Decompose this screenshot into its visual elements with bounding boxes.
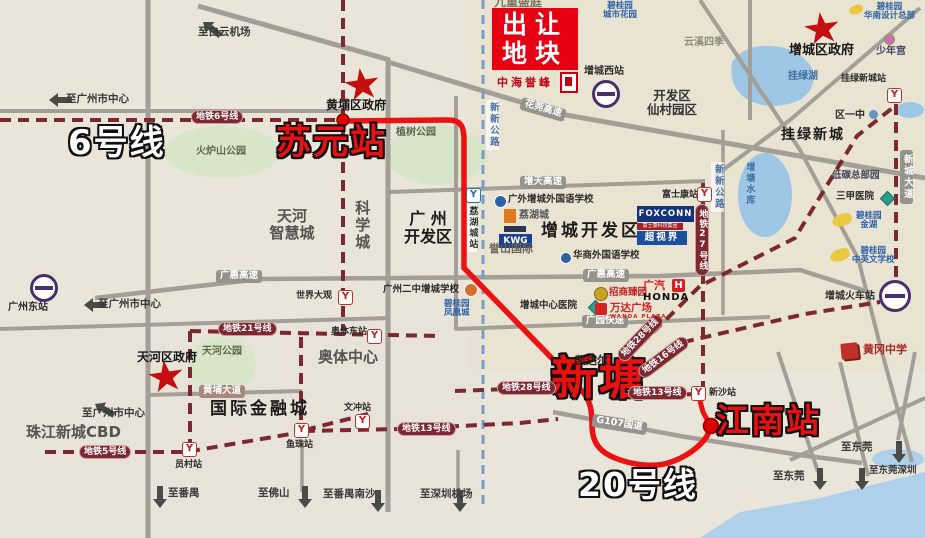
lihucheng-estate-logo — [504, 209, 516, 223]
school-icon-gz-no2 — [464, 283, 478, 297]
poi-youth-palace: 少年宫 — [876, 46, 906, 58]
road-label-xinxin-b: 新新公路 — [711, 162, 724, 212]
metro-label-line13-west: 地铁13号线 — [397, 422, 456, 436]
foxconn-logo-box: FOXCONN — [637, 206, 694, 222]
area-intl-finance: 国际金融城 — [210, 400, 310, 420]
metro-label-line28-west: 地铁28号线 — [497, 381, 556, 395]
chaoshijie-logo-box: 超视界 — [637, 231, 687, 245]
metro-label-line13-east: 地铁13号线 — [628, 386, 687, 400]
poi-low-carbon-park: 低碳总部园 — [832, 171, 880, 182]
zengtang-reservoir-label: 增塘水库 — [744, 162, 754, 206]
area-tianhe-smart: 天河 智慧城 — [262, 208, 322, 243]
poi-bgy-jinhu: 碧桂园 金湖 — [856, 212, 882, 231]
parcel-badge: 出让 地块 — [492, 8, 578, 70]
gualv-lake-label: 挂绿湖 — [788, 71, 818, 83]
area-tianhe-smart-l1: 天河 — [262, 208, 322, 225]
dir-gz-center-1: 至广州市中心 — [66, 93, 129, 105]
dir-panyu-nansha: 至番禺南沙 — [323, 488, 376, 500]
parcel-badge-line1: 出让 — [492, 11, 578, 40]
metro-label-line21: 地铁21号线 — [218, 322, 277, 336]
dir-shenzhen-airport: 至深圳机场 — [420, 488, 473, 500]
road-label-huangpu-ave: 黄埔大道 — [199, 385, 245, 398]
area-tianhe-smart-l2: 智慧城 — [262, 225, 322, 242]
line6-callout: 6号线 — [68, 124, 166, 163]
school-icon-huashang — [560, 252, 572, 264]
metro-icon-yuancun: Y — [182, 442, 197, 457]
station-zengcheng-west: 增城西站 — [584, 66, 624, 78]
dir-baiyun-airport: 至白云机场 — [198, 26, 251, 38]
station-yuancun: 员村站 — [175, 460, 202, 470]
zengcheng-xintang-metro-map: 黄埔区政府 天河区政府 增城区政府 出让 地块 中海誉峰 6号线 苏元站 新塘 … — [0, 0, 925, 538]
road-label-xincheng-ave: 新城大道 — [900, 150, 913, 204]
suyuan-callout: 苏元站 — [276, 123, 387, 163]
poi-yushan-intl: 誉山国际 — [489, 243, 533, 256]
area-kaifaqu-xiancun: 开发区 仙村园区 — [640, 89, 704, 118]
poi-bgy-city-garden: 碧桂园 城市花园 — [603, 2, 637, 21]
area-zhujiang-cbd: 珠江新城CBD — [26, 424, 121, 441]
wanda-logo — [595, 303, 607, 315]
parcel-badge-line2: 地块 — [492, 40, 578, 69]
arrow-dongguan-2 — [813, 468, 827, 490]
poi-bgy-jinhu-l2: 金湖 — [856, 221, 882, 230]
huangpu-gov-label: 黄埔区政府 — [326, 99, 386, 113]
poi-sanjia-hospital: 三甲医院 — [836, 192, 874, 203]
road-label-guanghui-east: 广惠高速 — [583, 269, 629, 282]
dir-dongguan-shenzhen: 至东莞深圳 — [869, 466, 917, 477]
poi-bgy-design-hq: 碧桂园 华南设计总部 — [864, 3, 915, 22]
station-foxconn: 富士康站 — [662, 190, 698, 200]
poi-huanggang: 黄冈中学 — [863, 344, 907, 357]
flower-icon-youth-palace — [884, 34, 895, 45]
poi-zhaoshang: 招商臻园 — [609, 288, 647, 299]
road-label-zengtian: 增天高速 — [520, 176, 566, 189]
road-label-guanghui-west: 广惠高速 — [216, 270, 262, 283]
poi-bgy-phoenix-l2: 凤凰城 — [444, 309, 470, 318]
road-label-xinxin-a: 新新公路 — [486, 100, 499, 150]
poi-jiuzhong: 九重盛庭 — [494, 0, 542, 10]
kwg-small-logo — [504, 226, 526, 232]
poi-gac: 广汽 — [643, 280, 665, 293]
poi-yunxi: 云溪四季 — [684, 37, 724, 49]
station-xinsha: 新沙站 — [709, 388, 736, 398]
dir-dongguan-2: 至东莞 — [773, 470, 805, 482]
metro-icon-shijiedaguan: Y — [338, 290, 353, 305]
dir-foshan: 至佛山 — [258, 487, 290, 499]
station-aoti-east: 奥体东站 — [331, 327, 367, 337]
station-yuzhu: 鱼珠站 — [286, 440, 313, 450]
railway-icon-bar — [35, 286, 53, 290]
poi-bgy-design-l2: 华南设计总部 — [864, 12, 915, 21]
area-gz-dev-l1: 广 州 — [404, 210, 452, 228]
poi-wanda-en: WANDA PLAZA — [610, 314, 666, 320]
huolushan-park-label: 火炉山公园 — [196, 146, 246, 158]
school-icon-gwaifl — [494, 195, 507, 208]
metro-label-line5: 地铁5号线 — [79, 445, 131, 459]
railway-icon-zengcheng — [879, 280, 911, 312]
metro-icon-gualv-new-town: Y — [887, 88, 902, 103]
tianhe-gov-label: 天河区政府 — [137, 351, 197, 365]
metro-label-line27: 地铁27号线 — [695, 204, 709, 276]
station-wenchong: 文冲站 — [344, 403, 371, 413]
poi-huashang-school: 华商外国语学校 — [573, 251, 640, 262]
station-gualv-new-town: 挂绿新城站 — [841, 74, 886, 84]
area-zc-dev: 增城开发区 — [541, 222, 641, 242]
metro-icon-yuzhu: Y — [294, 423, 309, 438]
poi-honda: HONDA — [643, 292, 689, 304]
dir-panyu: 至番禺 — [168, 487, 200, 499]
area-gz-dev-l2: 开发区 — [404, 228, 452, 246]
area-aoti-center: 奥体中心 — [318, 349, 378, 366]
poi-bgy-school-l2: 中英文学校 — [852, 256, 895, 265]
map-shapes-layer — [0, 0, 925, 538]
zengcheng-gov-label: 增城区政府 — [789, 44, 854, 59]
line20-callout: 20号线 — [578, 466, 698, 504]
dir-gz-center-3: 至广州市中心 — [82, 407, 145, 419]
parcel-developer-label: 中海誉峰 — [497, 77, 553, 90]
poi-bgy-school: 碧桂园 中英文学校 — [852, 247, 895, 266]
zhishu-park-label: 植树公园 — [396, 127, 436, 139]
area-science-city: 科学城 — [353, 200, 370, 251]
area-kaidaer: 凯达尔 — [575, 355, 608, 368]
poi-bgy-phoenix: 碧桂园 凤凰城 — [444, 300, 470, 319]
foxconn-cn-strip: 富士康科技集团 — [637, 223, 683, 230]
area-kaifaqu-l2: 仙村园区 — [640, 103, 704, 117]
station-lihucheng: 荔湖城站 — [467, 204, 477, 252]
tianhe-park-label: 天河公园 — [202, 346, 242, 358]
area-kaifaqu-l1: 开发区 — [640, 89, 704, 103]
metro-icon-xinsha: Y — [691, 386, 706, 401]
poi-zc-hospital: 增城中心医院 — [520, 301, 577, 312]
area-gz-dev: 广 州 开发区 — [404, 210, 452, 247]
zhaoshang-logo — [594, 287, 608, 301]
dir-gz-center-2: 至广州市中心 — [98, 298, 161, 310]
station-zengcheng-railway: 增城火车站 — [825, 291, 875, 303]
railway-icon-bar — [885, 294, 906, 298]
developer-logo-mark — [565, 77, 572, 86]
river-shape — [700, 472, 925, 538]
area-gualv-town: 挂绿新城 — [781, 127, 845, 143]
developer-logo — [560, 72, 578, 93]
metro-icon-foxconn: Y — [697, 187, 712, 202]
poi-wanda: 万达广场 — [610, 302, 652, 314]
jiangnan-callout: 江南站 — [716, 402, 821, 440]
huanggang-logo — [840, 342, 859, 360]
metro-icon-wenchong: Y — [355, 414, 370, 429]
dir-dongguan-1: 至东莞 — [841, 441, 873, 453]
poi-lihucheng-estate: 荔湖城 — [519, 210, 549, 222]
honda-h-logo: H — [672, 279, 685, 292]
station-guangzhou-east: 广州东站 — [8, 302, 48, 314]
metro-label-line6: 地铁6号线 — [191, 110, 243, 124]
small-pond-shape — [896, 102, 924, 118]
railway-icon-bar — [597, 92, 615, 96]
station-shijiedaguan: 世界大观 — [296, 291, 332, 301]
district-no1-icon — [869, 110, 878, 119]
metro-icon-lihucheng: Y — [466, 188, 481, 203]
railway-icon-zengcheng-west — [592, 80, 620, 108]
poi-gz-no2-school: 广州二中增城学校 — [383, 285, 459, 296]
metro-icon-aoti-east: Y — [367, 329, 382, 344]
poi-district-no1: 区一中 — [835, 110, 865, 122]
poi-gwaifl-school: 广外增城外国语学校 — [508, 195, 594, 206]
railway-icon-guangzhou-east — [30, 274, 58, 302]
poi-bgy-city-l2: 城市花园 — [603, 11, 637, 20]
